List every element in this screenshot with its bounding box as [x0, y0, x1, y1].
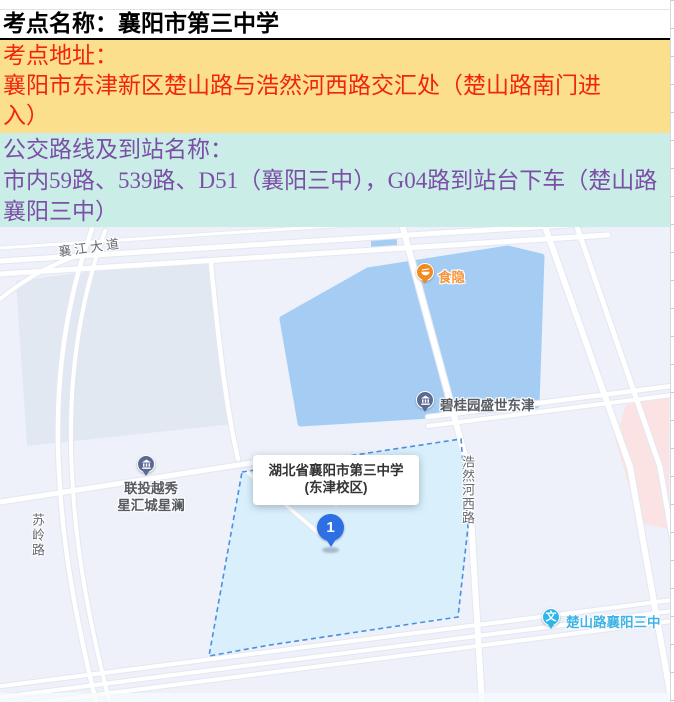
building-icon: [141, 459, 152, 470]
school-info-window[interactable]: 湖北省襄阳市第三中学 (东津校区): [253, 455, 419, 505]
residence-poi-pin-liantou[interactable]: [137, 455, 155, 473]
bus-route-label: 公交路线及到站名称：: [3, 134, 670, 165]
marker-number: 1: [326, 519, 334, 536]
road-label-suling-road: 苏岭路: [28, 513, 47, 558]
bus-route-value: 市内59路、539路、D51（襄阳三中），G04路到站台下车（楚山路襄阳三中）: [3, 165, 663, 227]
exam-site-notice-page: 考点名称：襄阳市第三中学 考点地址： 襄阳市东津新区楚山路与浩然河西路交汇处（楚…: [0, 0, 674, 702]
school-location-marker[interactable]: 1: [317, 514, 344, 541]
school-campus: (东津校区): [253, 479, 419, 496]
road-label-haoranhexi-road: 浩然河西路: [458, 455, 477, 525]
right-edge-ruler: [670, 0, 674, 702]
bus-stop-pin[interactable]: 文: [542, 608, 560, 626]
building-icon: [420, 395, 431, 406]
restaurant-poi-label[interactable]: 食隐: [438, 266, 465, 286]
exam-site-title: 考点名称：襄阳市第三中学: [0, 9, 670, 40]
bus-route-section: 公交路线及到站名称： 市内59路、539路、D51（襄阳三中），G04路到站台下…: [0, 133, 670, 227]
bus-stop-label[interactable]: 楚山路襄阳三中: [566, 611, 661, 631]
exam-address-value: 襄阳市东津新区楚山路与浩然河西路交汇处（楚山路南门进入）: [3, 71, 615, 131]
residence-poi-pin-biguiyuan[interactable]: [416, 391, 434, 409]
bus-stop-icon: 文: [546, 612, 557, 623]
map-block-area: [16, 256, 233, 446]
restaurant-poi-pin[interactable]: [416, 263, 434, 281]
exam-address-label: 考点地址：: [3, 41, 670, 71]
residence-poi-label-biguiyuan[interactable]: 碧桂园盛世东津: [440, 394, 535, 414]
residence-poi-label-liantou[interactable]: 联投越秀 星汇城星澜: [96, 480, 206, 514]
exam-address-section: 考点地址： 襄阳市东津新区楚山路与浩然河西路交汇处（楚山路南门进入）: [0, 40, 670, 133]
school-name: 湖北省襄阳市第三中学: [253, 462, 419, 479]
food-bowl-icon: [420, 267, 431, 278]
location-map[interactable]: 襄江大道 苏岭路 浩然河西路 食隐 碧: [0, 227, 670, 702]
